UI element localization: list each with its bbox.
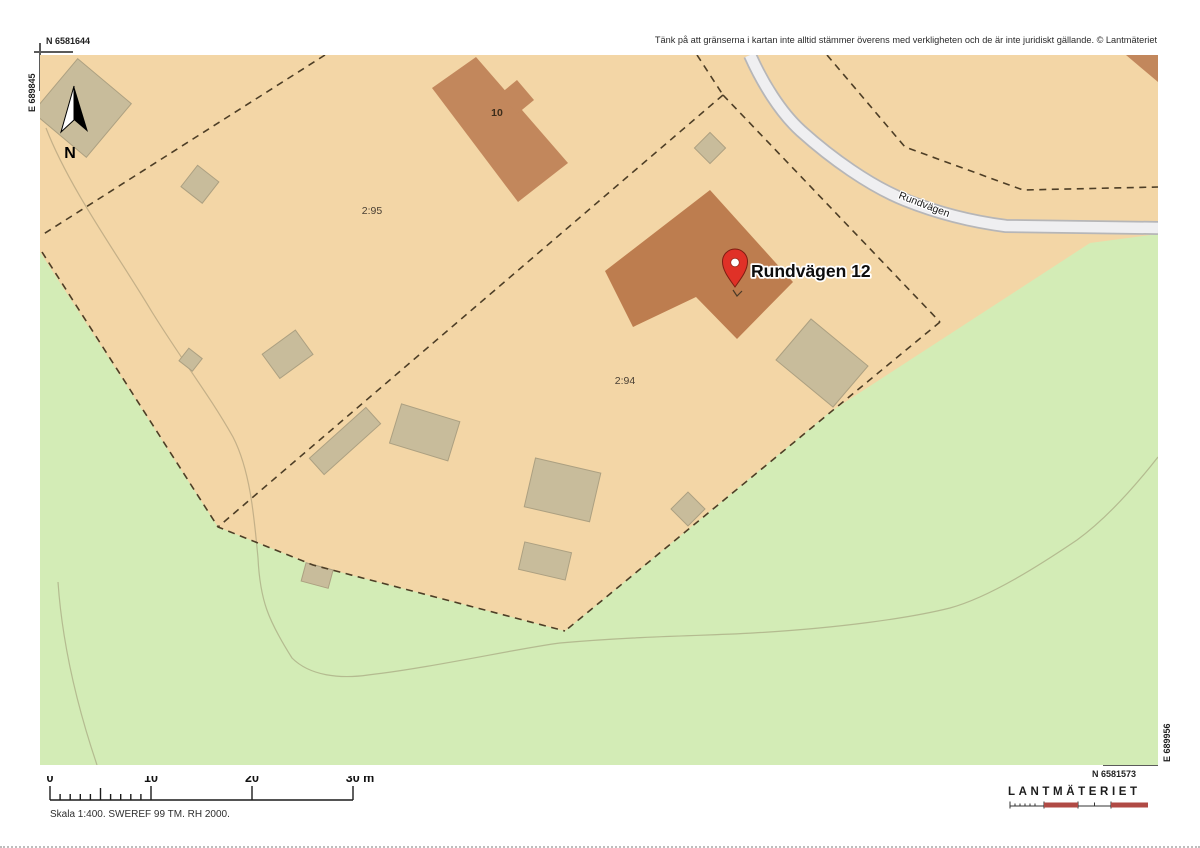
pin-hole [731, 258, 740, 267]
north-arrow-label: N [64, 145, 76, 162]
scale-caption: Skala 1:400. SWEREF 99 TM. RH 2000. [50, 809, 230, 820]
logo-red-bar-1 [1044, 803, 1078, 808]
lantmateriet-logo-bar [1008, 798, 1150, 812]
parcel-295-label: 2:95 [362, 205, 383, 217]
coordinate-label-east-left: E 689845 [27, 73, 37, 112]
parcel-294-label: 2:94 [615, 375, 636, 387]
pin-address-label: Rundvägen 12 [751, 261, 871, 281]
disclaimer-text: Tänk på att gränserna i kartan inte allt… [655, 35, 1157, 45]
scale-tick-10: 10 [144, 776, 158, 785]
map-page: N 6581644 Tänk på att gränserna i kartan… [0, 0, 1200, 848]
logo-red-bar-2 [1111, 803, 1148, 808]
scale-bar-ticks [50, 786, 353, 800]
scale-tick-30m: 30 m [346, 776, 375, 785]
scale-tick-20: 20 [245, 776, 259, 785]
building-10-label: 10 [491, 107, 503, 119]
coordinate-label-north-top: N 6581644 [46, 36, 90, 46]
coordinate-label-north-bottom: N 6581573 [1092, 769, 1136, 779]
lantmateriet-logo: LANTMÄTERIET [1008, 786, 1158, 817]
scale-bar: 0 10 20 30 m Skala 1:400. SWEREF 99 TM. … [36, 776, 396, 824]
coordinate-label-east-right: E 689956 [1162, 723, 1172, 762]
lantmateriet-logo-text: LANTMÄTERIET [1008, 786, 1158, 798]
map-canvas: Rundvägen 10 2:95 2:94 N Rundvägen 12 [40, 55, 1158, 765]
scale-tick-0: 0 [47, 776, 54, 785]
